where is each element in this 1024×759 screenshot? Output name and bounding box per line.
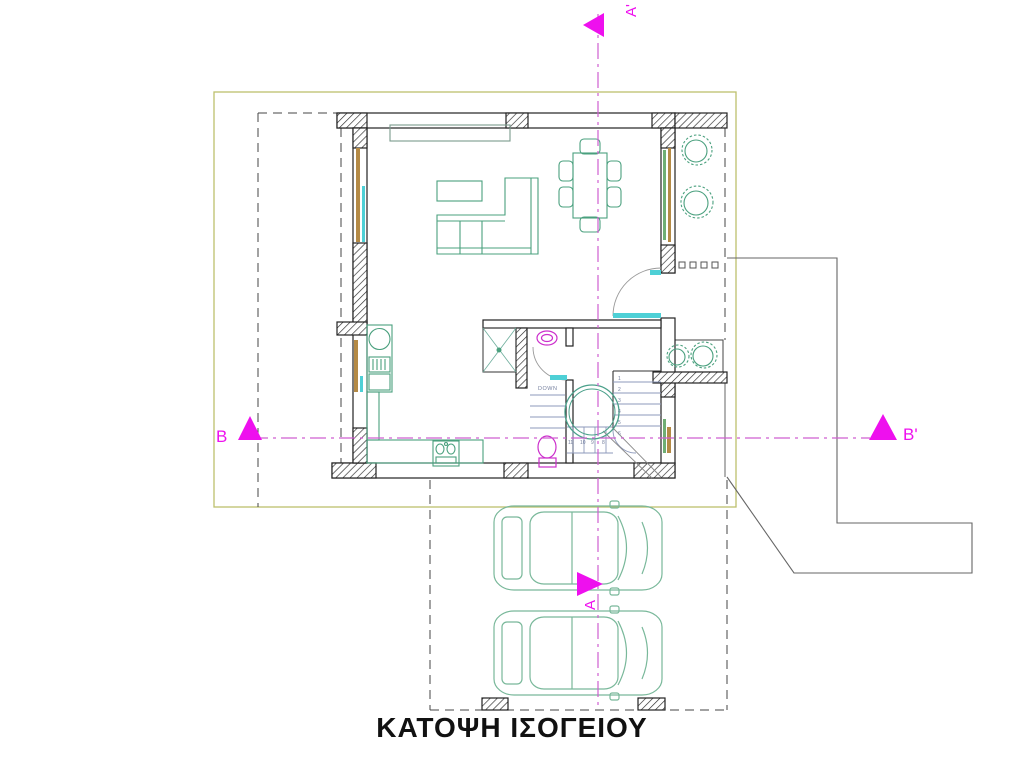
wall-bath-top bbox=[483, 320, 661, 328]
down-label: DOWN bbox=[538, 386, 557, 392]
stair-number: 8 bbox=[602, 440, 605, 446]
stair-number: 4 bbox=[618, 409, 621, 415]
cars bbox=[494, 501, 662, 700]
property-line bbox=[214, 92, 736, 507]
dining-chair bbox=[559, 161, 573, 181]
window-right-living-green bbox=[663, 150, 666, 240]
kitchen-counter-left bbox=[367, 392, 379, 440]
kitchen-units bbox=[367, 325, 483, 466]
planter-wall bbox=[653, 372, 727, 383]
setback-lines bbox=[258, 113, 727, 710]
dining-chair bbox=[607, 187, 621, 207]
stair-number: 11 bbox=[568, 440, 573, 446]
windows bbox=[354, 148, 671, 453]
entry-door-leaf bbox=[613, 313, 661, 318]
section-lines: A' A B B' bbox=[216, 4, 918, 708]
sofa bbox=[437, 178, 538, 254]
stair-number: 10 bbox=[580, 440, 586, 446]
dining-chair bbox=[607, 161, 621, 181]
dining-table bbox=[573, 153, 607, 218]
bath-sink bbox=[537, 331, 557, 345]
entry-door-arc bbox=[613, 268, 661, 316]
stair-number: 1 bbox=[618, 376, 621, 382]
section-marker-a-bottom bbox=[577, 572, 603, 596]
window-left-living-frame bbox=[356, 148, 360, 242]
carport-column-right bbox=[638, 698, 665, 710]
bath-fixtures bbox=[537, 331, 557, 467]
bath-door-leaf bbox=[550, 375, 567, 380]
kitchen-sink-round bbox=[369, 329, 390, 350]
window-kitchen-glass bbox=[360, 376, 363, 392]
window-stair-green bbox=[663, 419, 666, 453]
house-walls bbox=[332, 113, 727, 710]
section-marker-a-top bbox=[583, 13, 604, 37]
garden-wall bbox=[675, 113, 727, 128]
kitchen-oven bbox=[369, 374, 390, 390]
dining-chair bbox=[580, 217, 600, 232]
toilet-bowl bbox=[538, 436, 556, 458]
window-stair-frame bbox=[667, 427, 671, 453]
section-label-a-bottom: A bbox=[582, 600, 599, 610]
wall-bath-divider bbox=[516, 328, 527, 388]
kitchen-double-sink bbox=[433, 441, 459, 466]
section-label-b-left: B bbox=[216, 427, 227, 446]
stair-number: 3 bbox=[618, 398, 621, 404]
kitchen-stove bbox=[369, 357, 390, 372]
window-right-living-frame bbox=[668, 148, 671, 242]
window-kitchen-frame bbox=[354, 340, 358, 392]
shower-drain bbox=[497, 348, 502, 353]
stair-number: 9 bbox=[591, 440, 594, 446]
dining-chair bbox=[580, 139, 600, 154]
plan-title: ΚΑΤΟΨΗ ΙΣΟΓΕΙΟΥ bbox=[0, 712, 1024, 744]
stair-number: 6 bbox=[618, 431, 621, 437]
dining-chair bbox=[559, 187, 573, 207]
dining-set bbox=[559, 139, 621, 232]
entry-door-jamb bbox=[650, 270, 661, 275]
window-left-living-glass bbox=[362, 186, 365, 242]
section-marker-b-right bbox=[869, 414, 897, 440]
section-label-a-top: A' bbox=[623, 4, 640, 17]
floor-plan-canvas: 1 2 3 4 5 6 11 10 9 8 DOWN bbox=[0, 0, 1024, 759]
floor-plan-drawing: 1 2 3 4 5 6 11 10 9 8 DOWN bbox=[0, 0, 1024, 759]
wall-bath-right-a bbox=[566, 328, 573, 346]
stair-number: 5 bbox=[618, 420, 621, 426]
kitchen-counter-bottom bbox=[367, 440, 483, 463]
wall-kitchen-stub bbox=[337, 322, 367, 335]
carport-column-left bbox=[482, 698, 508, 710]
shower bbox=[483, 328, 516, 372]
section-label-b-right: B' bbox=[903, 425, 918, 444]
driveway-boundary bbox=[727, 258, 972, 573]
coffee-table bbox=[437, 181, 482, 201]
stair-number: 2 bbox=[618, 387, 621, 393]
car-2 bbox=[494, 606, 662, 700]
